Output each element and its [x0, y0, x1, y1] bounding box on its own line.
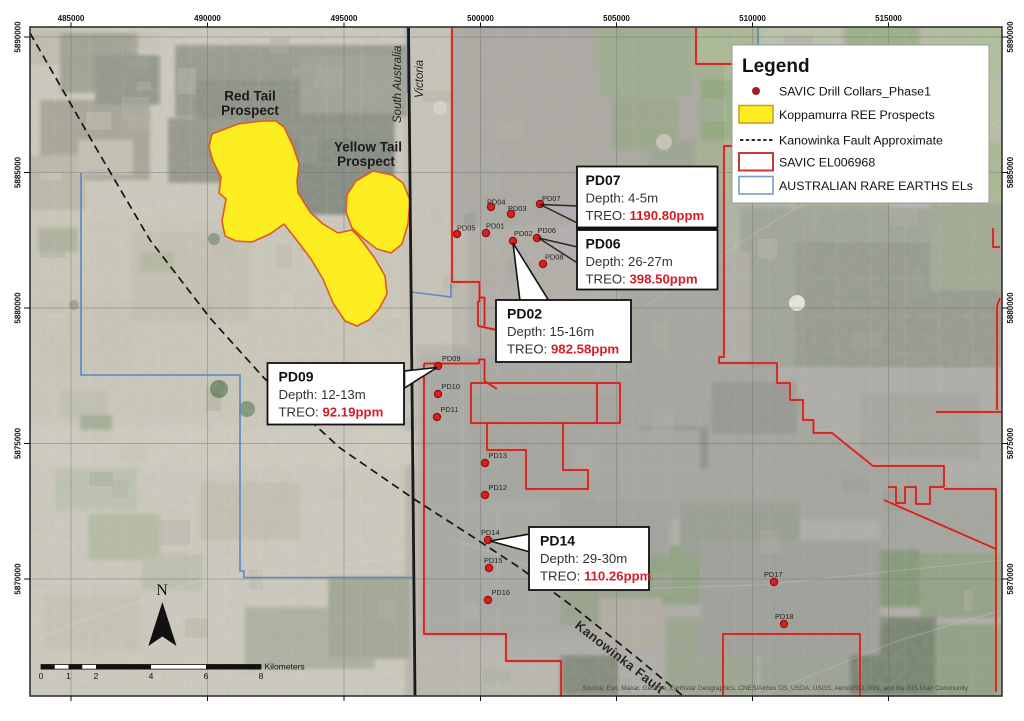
svg-text:PD06: PD06	[538, 226, 557, 235]
svg-text:PD06: PD06	[586, 236, 621, 252]
svg-text:PD04: PD04	[487, 198, 506, 207]
svg-text:Depth: 12-13m: Depth: 12-13m	[279, 387, 366, 402]
svg-text:PD10: PD10	[442, 382, 461, 391]
svg-text:Depth: 4-5m: Depth: 4-5m	[586, 191, 659, 206]
svg-text:PD09: PD09	[442, 354, 461, 363]
svg-text:495000: 495000	[331, 14, 358, 23]
svg-text:N: N	[156, 582, 168, 599]
svg-text:PD09: PD09	[279, 369, 314, 385]
svg-text:Red Tail: Red Tail	[224, 89, 276, 104]
svg-text:Kanowinka Fault Approximate: Kanowinka Fault Approximate	[779, 134, 943, 148]
svg-text:1: 1	[66, 671, 71, 681]
svg-text:5885000: 5885000	[14, 156, 23, 188]
svg-text:505000: 505000	[603, 14, 630, 23]
svg-text:8: 8	[259, 671, 264, 681]
svg-text:TREO: 398.50ppm: TREO: 398.50ppm	[586, 272, 698, 287]
svg-text:510000: 510000	[739, 14, 766, 23]
svg-text:South Australia: South Australia	[392, 45, 404, 123]
svg-text:Depth: 26-27m: Depth: 26-27m	[586, 254, 673, 269]
svg-text:PD05: PD05	[457, 224, 476, 233]
svg-text:PD14: PD14	[481, 528, 500, 537]
svg-text:PD07: PD07	[586, 172, 621, 188]
svg-text:PD02: PD02	[514, 229, 533, 238]
svg-text:PD02: PD02	[507, 306, 542, 322]
svg-text:PD16: PD16	[492, 588, 511, 597]
svg-text:6: 6	[204, 671, 209, 681]
svg-text:490000: 490000	[194, 14, 221, 23]
svg-text:TREO: 92.19ppm: TREO: 92.19ppm	[279, 405, 384, 420]
svg-text:PD15: PD15	[484, 556, 503, 565]
svg-text:5875000: 5875000	[14, 427, 23, 459]
svg-text:Prospect: Prospect	[337, 154, 395, 169]
svg-text:2: 2	[94, 671, 99, 681]
svg-text:PD17: PD17	[764, 570, 783, 579]
svg-text:TREO: 982.58ppm: TREO: 982.58ppm	[507, 342, 619, 357]
svg-text:AUSTRALIAN RARE EARTHS ELs: AUSTRALIAN RARE EARTHS ELs	[779, 179, 973, 193]
svg-text:SAVIC Drill Collars_Phase1: SAVIC Drill Collars_Phase1	[779, 85, 931, 99]
svg-text:5890000: 5890000	[14, 21, 23, 53]
svg-text:500000: 500000	[467, 14, 494, 23]
svg-text:Victoria: Victoria	[414, 60, 426, 98]
svg-text:Prospect: Prospect	[221, 103, 279, 118]
svg-text:Kilometers: Kilometers	[265, 662, 305, 672]
svg-text:PD12: PD12	[489, 483, 508, 492]
svg-text:SAVIC EL006968: SAVIC EL006968	[779, 156, 875, 170]
svg-text:Depth: 15-16m: Depth: 15-16m	[507, 324, 594, 339]
svg-text:PD18: PD18	[775, 612, 794, 621]
svg-text:4: 4	[149, 671, 154, 681]
svg-text:PD03: PD03	[508, 204, 527, 213]
svg-text:Depth: 29-30m: Depth: 29-30m	[540, 551, 627, 566]
svg-text:PD11: PD11	[441, 405, 459, 414]
svg-text:515000: 515000	[875, 14, 902, 23]
svg-text:PD07: PD07	[542, 194, 561, 203]
svg-text:Koppamurra REE Prospects: Koppamurra REE Prospects	[779, 108, 935, 122]
svg-text:5880000: 5880000	[14, 292, 23, 324]
svg-text:PD13: PD13	[489, 451, 508, 460]
svg-text:Legend: Legend	[742, 56, 810, 77]
svg-text:PD08: PD08	[545, 253, 564, 262]
svg-text:0: 0	[39, 671, 44, 681]
svg-text:485000: 485000	[58, 14, 85, 23]
svg-text:Source: Esri, Maxar, GeoEye, E: Source: Esri, Maxar, GeoEye, Earthstar G…	[582, 685, 969, 692]
svg-text:TREO: 1190.80ppm: TREO: 1190.80ppm	[586, 208, 705, 223]
svg-text:TREO: 110.26ppm: TREO: 110.26ppm	[540, 569, 651, 584]
svg-text:PD14: PD14	[540, 533, 575, 549]
svg-text:5870000: 5870000	[14, 563, 23, 595]
svg-text:Yellow Tail: Yellow Tail	[334, 140, 402, 155]
svg-text:PD01: PD01	[486, 222, 505, 231]
